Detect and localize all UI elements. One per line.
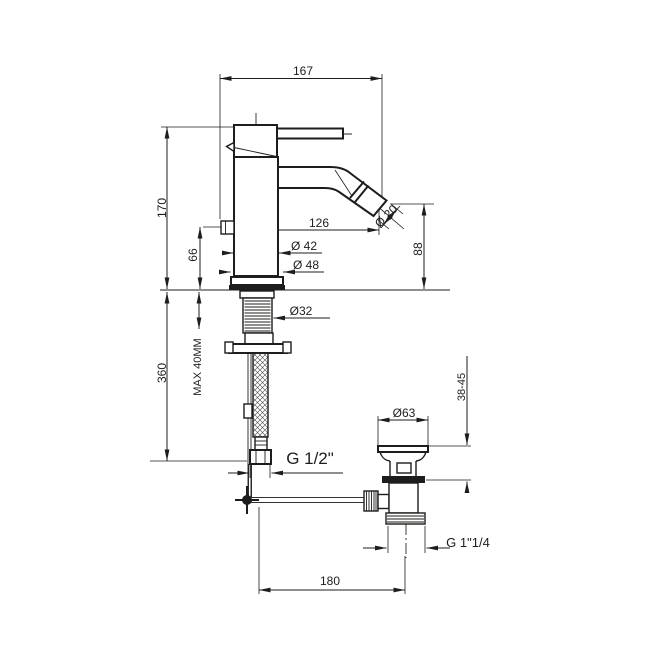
waste-window	[397, 463, 411, 473]
dim-label-shank-dia: Ø32	[290, 304, 313, 318]
waste-body	[389, 483, 418, 513]
dim-label-outlet-height: 66	[186, 248, 200, 262]
dim-label-body-dia: Ø 42	[291, 239, 317, 253]
dim-label-supply-thread: G 1/2"	[286, 449, 334, 468]
dim-label-body-height: 170	[155, 198, 169, 218]
mounting-nut	[229, 344, 287, 353]
base-flange	[231, 277, 283, 285]
waste-neck-left	[380, 452, 390, 461]
lever-tab	[227, 143, 235, 152]
faucet-body	[234, 157, 278, 276]
dim-label-spout-reach: 126	[309, 216, 329, 230]
drawing-canvas: 167 170 360 66 MAX 40MM 126 88 Ø 42	[0, 0, 650, 650]
dim-label-base-dia: Ø 48	[293, 258, 319, 272]
linkage-connector	[378, 495, 389, 509]
dim-label-waste-thread: G 1"1/4	[446, 535, 490, 550]
waste-gasket	[382, 476, 425, 483]
flexible-hose	[253, 353, 268, 437]
mounting-nut-tab-left	[225, 342, 233, 353]
rod-joint-pivot	[242, 495, 252, 505]
hose-nut	[250, 450, 271, 464]
dim-label-spout-height: 88	[411, 242, 425, 256]
spout	[278, 167, 387, 216]
dim-label-max-deck: MAX 40MM	[192, 338, 204, 395]
dimension-annotations: 167 170 360 66 MAX 40MM 126 88 Ø 42	[150, 64, 490, 594]
dim-label-hose-length: 360	[155, 363, 169, 383]
technical-drawing: 167 170 360 66 MAX 40MM 126 88 Ø 42	[0, 0, 650, 650]
side-outlet	[221, 221, 234, 234]
shank-lower-collar	[245, 333, 273, 344]
shank-collar	[240, 291, 274, 298]
handle-lever	[277, 129, 343, 139]
dim-label-drain-offset: 180	[320, 574, 340, 588]
dim-label-overall-width: 167	[293, 64, 313, 78]
waste-flange-top	[378, 446, 428, 452]
hose-ferrule	[255, 437, 267, 450]
dim-label-waste-deck-range: 38-45	[456, 373, 468, 401]
mounting-nut-tab-right	[283, 342, 291, 353]
rod-clip	[244, 404, 252, 418]
waste-neck-right	[416, 452, 426, 461]
dim-label-waste-dia: Ø63	[393, 406, 416, 420]
base-gasket	[229, 285, 285, 291]
linkage-rod	[251, 498, 364, 503]
